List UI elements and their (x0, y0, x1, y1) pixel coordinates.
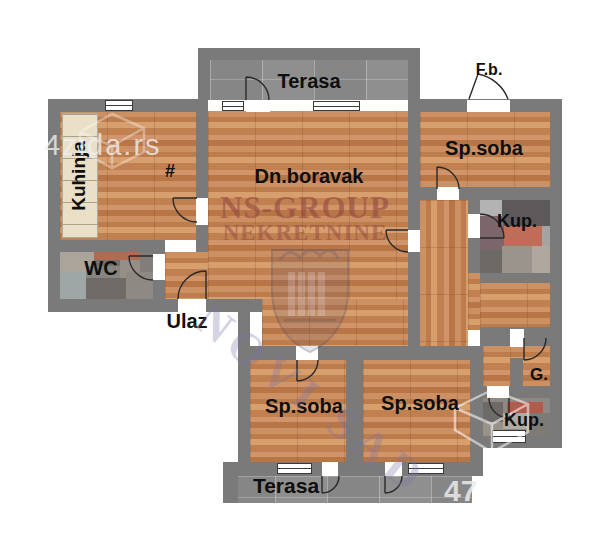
wall-segment (480, 273, 550, 283)
room-label-living-room: Dn.boravak (255, 165, 364, 188)
window-terrace-large (313, 101, 360, 111)
room-label-terrace-top: Terasa (277, 70, 340, 93)
door-gap-bedroom-top (437, 187, 459, 200)
window-bedroom-mid (408, 463, 444, 474)
room-label-bedroom-left: Sp.soba (265, 395, 343, 418)
wall-segment (468, 200, 480, 214)
room-label-bathroom-top: Kup. (497, 211, 537, 232)
wall-segment (223, 462, 238, 503)
wall-segment (408, 252, 420, 346)
window-kitchen (105, 100, 133, 111)
wall-segment (196, 111, 208, 198)
door-gap-bathroom-bottom (487, 386, 509, 398)
door-gap-wardrobe (510, 329, 524, 347)
door-gap-living-corridor (408, 230, 420, 252)
nook-floor (480, 283, 550, 330)
wall-segment (470, 346, 483, 476)
room-label-bedroom-top: Sp.soba (445, 137, 523, 160)
tile (502, 246, 532, 273)
sink-fixture (492, 430, 526, 443)
room-label-bedroom-mid: Sp.soba (381, 392, 459, 415)
tile (140, 252, 153, 272)
window-terrace-small (222, 101, 244, 111)
tile (86, 278, 126, 299)
wall-segment (48, 240, 165, 252)
wall-segment (198, 48, 420, 60)
wall-segment (153, 240, 165, 254)
room-label-wardrobe: G. (530, 365, 548, 385)
wall-segment (48, 299, 262, 312)
entry-hall-floor (165, 252, 208, 299)
room-label-wc: WC (84, 257, 117, 280)
wall-segment (198, 58, 210, 100)
wall-segment (468, 238, 480, 273)
tile (483, 402, 503, 422)
wall-segment (238, 312, 250, 475)
hall-floor (262, 299, 408, 346)
tile (542, 226, 550, 246)
tile (532, 246, 550, 273)
tile (480, 250, 502, 273)
window-bedroom-left (277, 463, 312, 474)
room-label-entrance: Ulaz (166, 310, 207, 333)
wall-segment (48, 99, 60, 312)
wall-segment (153, 280, 165, 299)
door-gap-french-balcony (467, 100, 510, 112)
wall-segment (346, 346, 363, 462)
room-label-terrace-bottom: Terasa (253, 474, 319, 498)
tile (126, 272, 153, 299)
room-label-dining-mark: # (165, 161, 175, 182)
floor-plan: Terasa F.b. Kuhinja # Dn.boravak Sp.soba… (0, 0, 609, 553)
door-gap-bedroom-left (296, 346, 318, 360)
door-gap-terrace-bottom-2 (385, 462, 402, 476)
door-gap-bathroom-top (468, 214, 480, 238)
room-label-kitchen: Kuhinja (68, 141, 90, 211)
room-label-french-balcony: F.b. (476, 61, 503, 79)
door-gap-terrace-top (246, 100, 270, 112)
tile (60, 272, 86, 299)
room-label-bathroom-bottom: Kup. (504, 410, 544, 431)
door-gap-kitchen (196, 198, 208, 225)
wall-segment (408, 99, 420, 230)
passage-floor (468, 273, 480, 330)
wall-segment (408, 58, 420, 100)
wall-segment (196, 224, 208, 252)
door-gap-terrace-bottom-1 (322, 462, 338, 476)
corridor-floor (420, 200, 468, 346)
door-gap-wc (153, 254, 165, 280)
living-room-floor (208, 111, 408, 299)
